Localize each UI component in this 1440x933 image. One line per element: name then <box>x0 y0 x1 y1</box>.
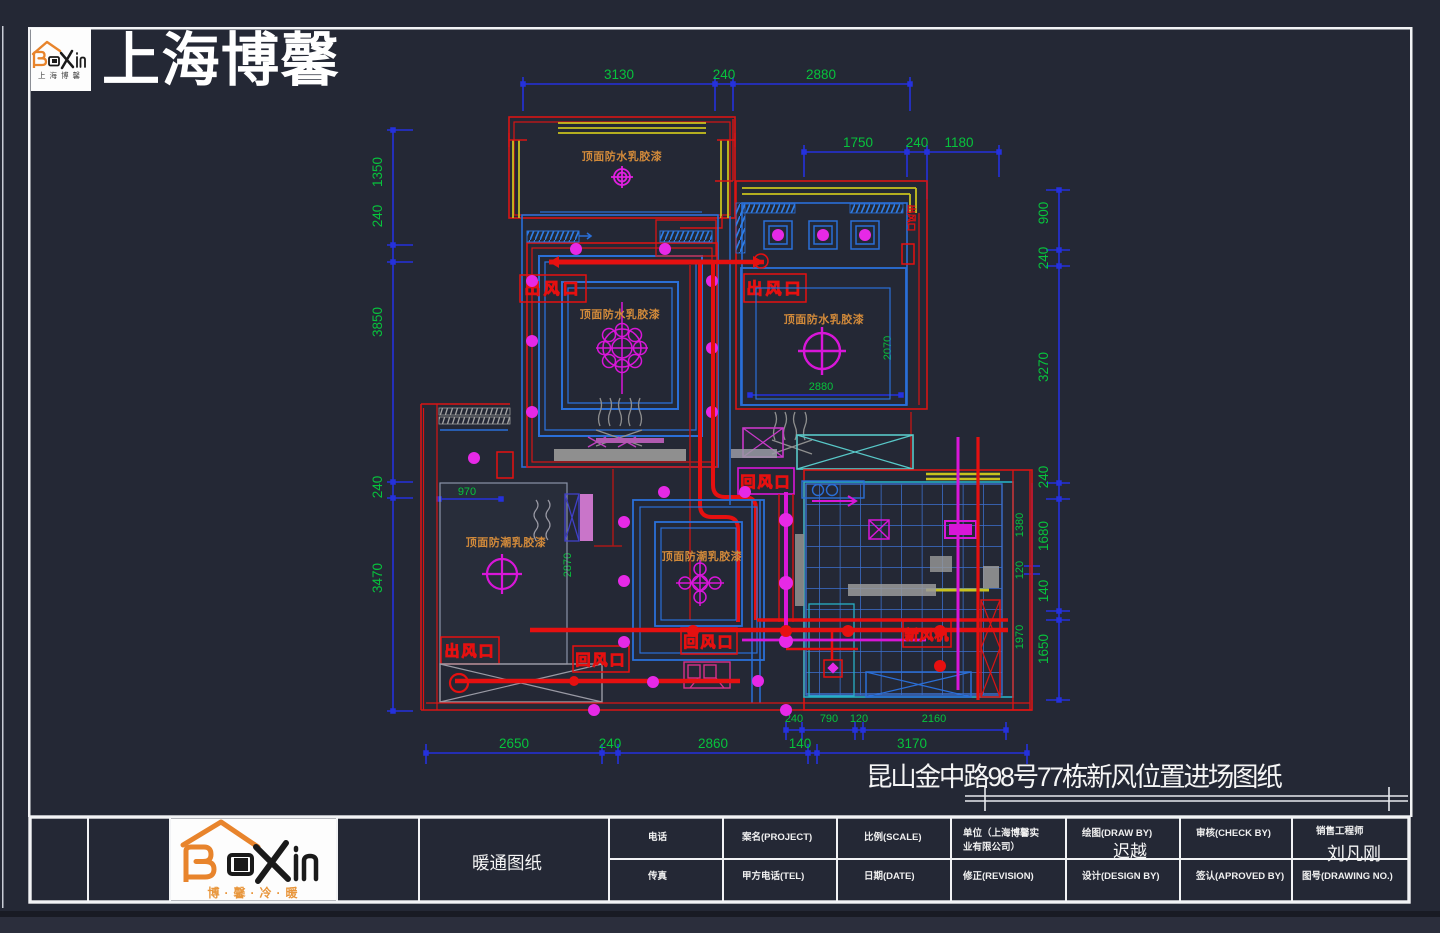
svg-text:970: 970 <box>458 486 476 498</box>
svg-text:甲方电话(TEL): 甲方电话(TEL) <box>742 870 804 882</box>
svg-text:销售工程师: 销售工程师 <box>1316 825 1364 837</box>
svg-text:修正(REVISION): 修正(REVISION) <box>962 870 1034 882</box>
svg-text:240: 240 <box>599 736 622 751</box>
svg-text:审核(CHECK BY): 审核(CHECK BY) <box>1196 827 1271 839</box>
svg-text:120: 120 <box>850 713 868 725</box>
svg-text:顶面防潮乳胶漆: 顶面防潮乳胶漆 <box>662 549 743 563</box>
svg-text:单位（上海博馨实: 单位（上海博馨实 <box>963 827 1040 839</box>
svg-text:1380: 1380 <box>1014 513 1026 537</box>
svg-text:案名(PROJECT): 案名(PROJECT) <box>741 831 812 843</box>
svg-text:1350: 1350 <box>370 157 385 187</box>
svg-text:2880: 2880 <box>806 67 836 82</box>
svg-text:签认(APROVED BY): 签认(APROVED BY) <box>1195 870 1284 882</box>
svg-text:业有限公司）: 业有限公司） <box>963 841 1020 853</box>
svg-text:240: 240 <box>906 135 929 150</box>
svg-text:3170: 3170 <box>897 736 927 751</box>
svg-text:2650: 2650 <box>499 736 529 751</box>
svg-text:240: 240 <box>1036 466 1051 489</box>
svg-text:2070: 2070 <box>882 336 894 360</box>
svg-text:3270: 3270 <box>1036 352 1051 382</box>
svg-text:140: 140 <box>1036 580 1051 603</box>
svg-text:暖通图纸: 暖通图纸 <box>472 853 542 873</box>
svg-text:240: 240 <box>370 205 385 228</box>
svg-text:迟越: 迟越 <box>1113 842 1147 861</box>
svg-text:3850: 3850 <box>370 307 385 337</box>
svg-text:1650: 1650 <box>1036 634 1051 664</box>
svg-text:2880: 2880 <box>809 381 833 393</box>
svg-text:出风口: 出风口 <box>906 204 917 231</box>
svg-text:1970: 1970 <box>1014 625 1026 649</box>
svg-text:上海博馨: 上海博馨 <box>38 70 84 80</box>
svg-text:日期(DATE): 日期(DATE) <box>864 870 914 882</box>
svg-text:回风口: 回风口 <box>575 652 626 669</box>
svg-text:3130: 3130 <box>604 67 634 82</box>
svg-text:1180: 1180 <box>944 135 973 150</box>
svg-text:设计(DESIGN BY): 设计(DESIGN BY) <box>1082 870 1160 882</box>
svg-text:昆山金中路98号77栋新风位置进场图纸: 昆山金中路98号77栋新风位置进场图纸 <box>866 762 1282 792</box>
svg-text:博·馨·冷·暖: 博·馨·冷·暖 <box>208 885 303 900</box>
svg-text:240: 240 <box>370 476 385 499</box>
svg-text:电话: 电话 <box>648 831 668 843</box>
svg-text:2860: 2860 <box>698 736 728 751</box>
svg-text:120: 120 <box>1014 561 1026 579</box>
svg-text:绘图(DRAW BY): 绘图(DRAW BY) <box>1082 827 1152 839</box>
svg-text:240: 240 <box>713 67 736 82</box>
svg-text:790: 790 <box>820 713 838 725</box>
svg-text:1680: 1680 <box>1036 521 1051 551</box>
svg-text:1750: 1750 <box>843 135 873 150</box>
svg-text:图号(DRAWING NO.): 图号(DRAWING NO.) <box>1302 871 1393 882</box>
svg-text:上海博馨: 上海博馨 <box>102 28 340 93</box>
svg-text:顶面防水乳胶漆: 顶面防水乳胶漆 <box>580 307 661 321</box>
svg-text:3470: 3470 <box>370 563 385 593</box>
svg-text:传真: 传真 <box>647 870 668 882</box>
svg-text:比例(SCALE): 比例(SCALE) <box>864 831 922 843</box>
svg-text:顶面防水乳胶漆: 顶面防水乳胶漆 <box>582 149 663 163</box>
svg-text:2160: 2160 <box>922 713 946 725</box>
svg-text:140: 140 <box>789 736 812 751</box>
svg-text:刘凡刚: 刘凡刚 <box>1327 844 1381 864</box>
svg-text:240: 240 <box>1036 247 1051 270</box>
svg-text:2870: 2870 <box>562 553 574 577</box>
svg-text:顶面防水乳胶漆: 顶面防水乳胶漆 <box>784 312 865 326</box>
svg-text:出风口: 出风口 <box>444 642 495 660</box>
svg-text:900: 900 <box>1036 202 1051 225</box>
